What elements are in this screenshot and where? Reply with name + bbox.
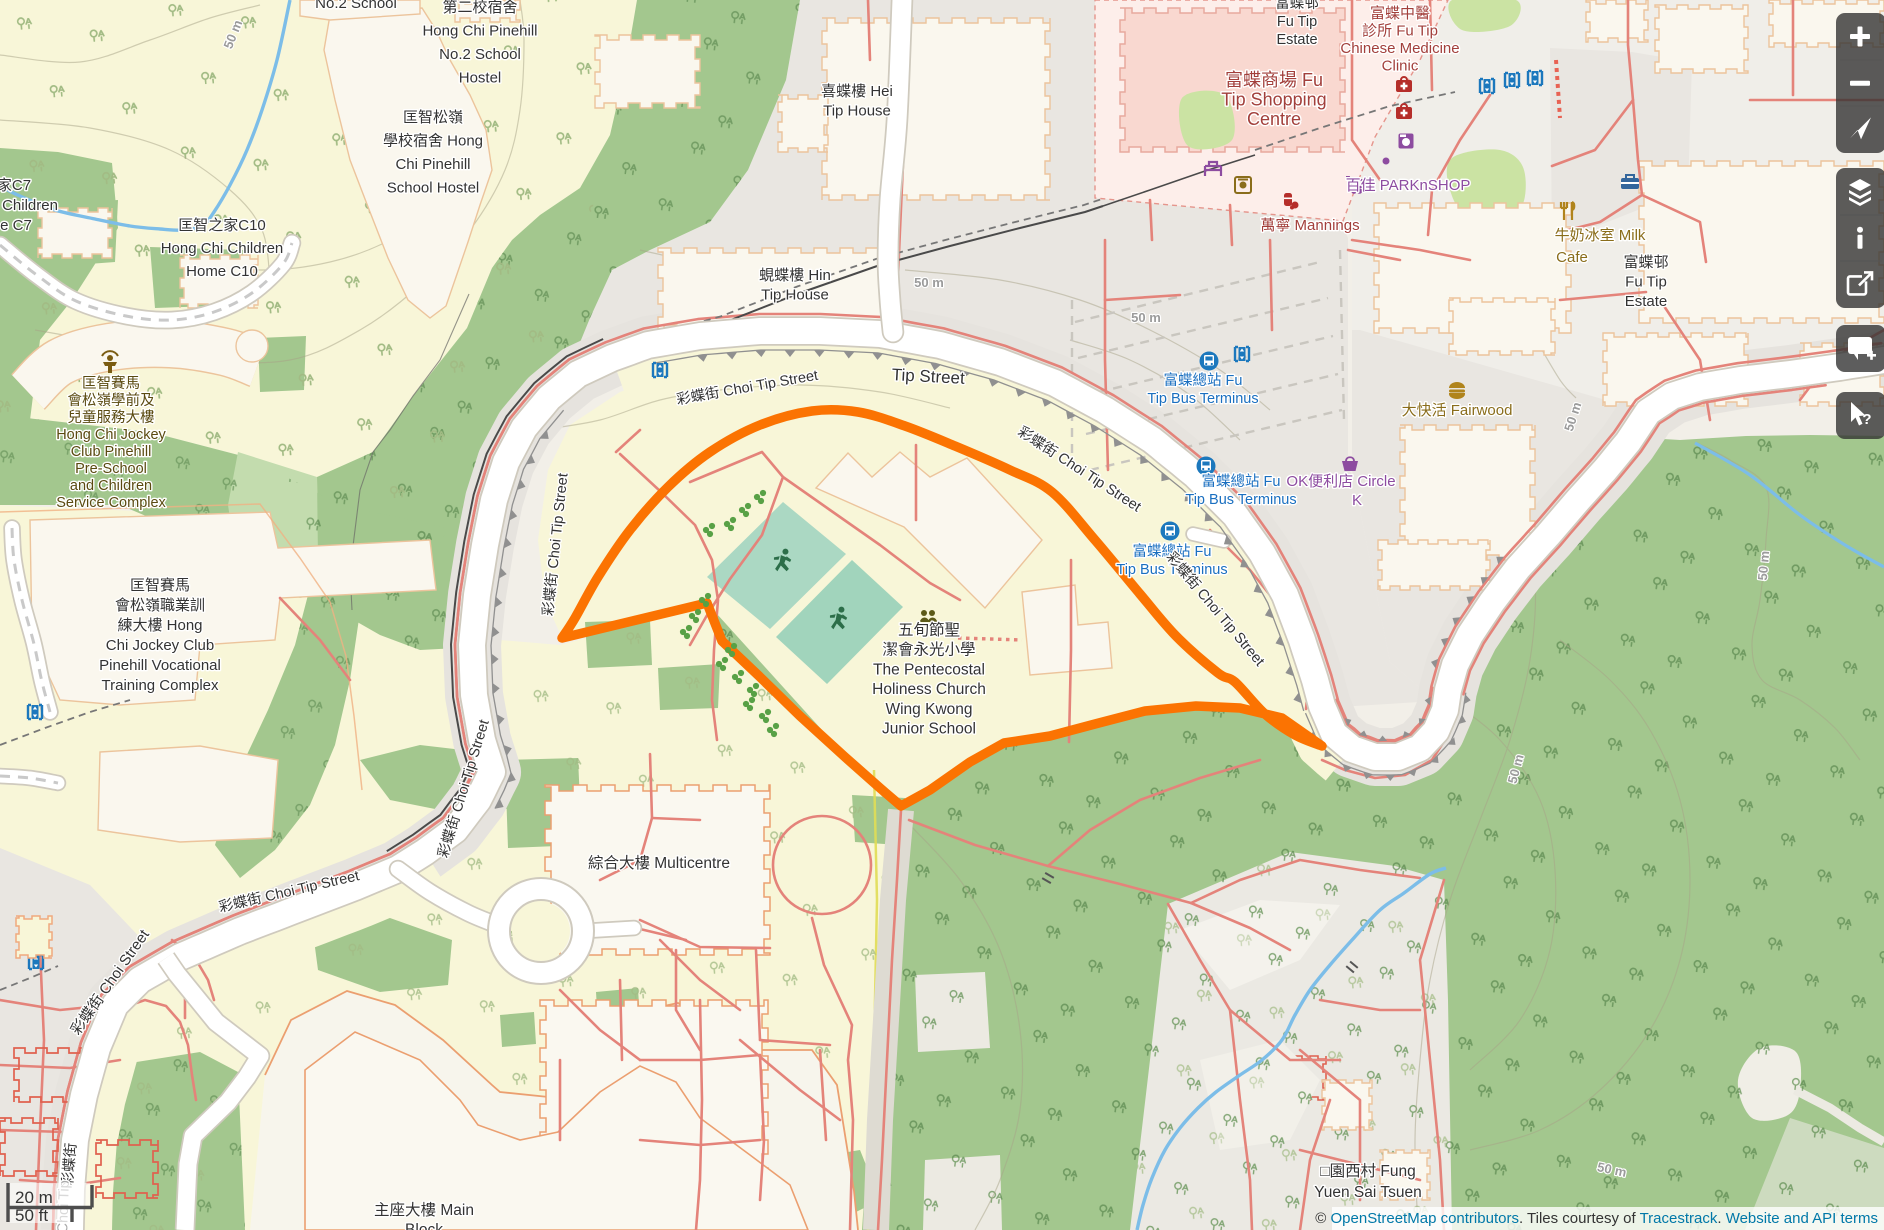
svg-text:富蝶邨: 富蝶邨 <box>1275 0 1319 12</box>
svg-text:Tip Street: Tip Street <box>891 365 965 388</box>
svg-text:學校宿舍 Hong: 學校宿舍 Hong <box>383 132 483 150</box>
svg-text:50 ft: 50 ft <box>15 1206 48 1225</box>
svg-text:Clinic: Clinic <box>1382 58 1419 75</box>
svg-text:Service Complex: Service Complex <box>56 495 166 511</box>
svg-text:Estate: Estate <box>1625 293 1668 310</box>
svg-text:綜合大樓 Multicentre: 綜合大樓 Multicentre <box>588 854 730 872</box>
svg-text:No.2 School: No.2 School <box>439 46 521 63</box>
svg-text:Junior School: Junior School <box>882 721 976 738</box>
svg-text:The Pentecostal: The Pentecostal <box>873 661 985 678</box>
svg-text:Fu Tip: Fu Tip <box>1625 274 1667 291</box>
svg-text:Home C10: Home C10 <box>186 263 258 280</box>
svg-text:主座大樓 Main: 主座大樓 Main <box>374 1201 474 1219</box>
svg-text:Tip Bus Terminus: Tip Bus Terminus <box>1185 492 1296 508</box>
svg-text:匡智賽馬: 匡智賽馬 <box>82 375 140 392</box>
svg-text:Tip Bus Terminus: Tip Bus Terminus <box>1147 391 1258 407</box>
svg-text:and Children: and Children <box>70 478 152 494</box>
svg-text:蜆蝶樓 Hin: 蜆蝶樓 Hin <box>759 267 831 284</box>
svg-text:家C7: 家C7 <box>0 177 31 194</box>
svg-text:練大樓 Hong: 練大樓 Hong <box>117 617 202 634</box>
svg-text:Children: Children <box>2 197 58 214</box>
svg-text:20 m: 20 m <box>15 1188 53 1207</box>
svg-text:Estate: Estate <box>1276 32 1317 48</box>
svg-text:No.2 School: No.2 School <box>315 0 397 12</box>
svg-text:牛奶冰室 Milk: 牛奶冰室 Milk <box>1555 227 1646 244</box>
svg-text:Hong Chi Jockey: Hong Chi Jockey <box>56 427 166 443</box>
svg-text:Tip House: Tip House <box>823 103 891 120</box>
svg-text:Tip Shopping: Tip Shopping <box>1221 90 1326 110</box>
svg-text:Chinese Medicine: Chinese Medicine <box>1340 40 1459 57</box>
svg-text:Hostel: Hostel <box>459 70 502 87</box>
svg-text:50 m: 50 m <box>1131 310 1161 325</box>
svg-text:Hong Chi Pinehill: Hong Chi Pinehill <box>422 23 537 40</box>
svg-text:富蝶總站 Fu: 富蝶總站 Fu <box>1202 472 1281 490</box>
svg-text:K: K <box>1352 492 1362 509</box>
svg-text:潔會永光小學: 潔會永光小學 <box>882 640 975 659</box>
svg-text:Tip House: Tip House <box>761 287 829 304</box>
svg-text:Chi Pinehill: Chi Pinehill <box>395 156 470 173</box>
svg-text:Yuen Sai Tsuen: Yuen Sai Tsuen <box>1314 1184 1421 1201</box>
svg-text:兒童服務大樓: 兒童服務大樓 <box>68 408 155 426</box>
svg-text:Training Complex: Training Complex <box>102 677 219 694</box>
svg-text:Wing Kwong: Wing Kwong <box>885 701 972 718</box>
svg-text:富蝶商場 Fu: 富蝶商場 Fu <box>1225 70 1323 90</box>
svg-text:喜蝶樓 Hei: 喜蝶樓 Hei <box>821 83 893 100</box>
svg-text:Club Pinehill: Club Pinehill <box>71 444 152 460</box>
svg-text:百佳 PARKnSHOP: 百佳 PARKnSHOP <box>1346 177 1471 194</box>
svg-text:會松嶺學前及: 會松嶺學前及 <box>68 391 155 409</box>
svg-text:Fu Tip: Fu Tip <box>1277 14 1317 30</box>
svg-text:Block: Block <box>405 1222 443 1230</box>
svg-text:匡智松嶺: 匡智松嶺 <box>403 108 463 126</box>
svg-text:大快活 Fairwood: 大快活 Fairwood <box>1402 402 1513 419</box>
svg-text:富蝶中醫: 富蝶中醫 <box>1370 4 1430 22</box>
svg-text:50 m: 50 m <box>1755 550 1773 581</box>
svg-text:富蝶總站 Fu: 富蝶總站 Fu <box>1164 371 1243 389</box>
svg-text:Pinehill Vocational: Pinehill Vocational <box>99 657 221 674</box>
svg-text:50 m: 50 m <box>914 275 944 290</box>
svg-text:Pre-School: Pre-School <box>75 461 147 477</box>
svg-text:會松嶺職業訓: 會松嶺職業訓 <box>115 597 205 614</box>
svg-text:OK便利店 Circle: OK便利店 Circle <box>1286 473 1395 490</box>
svg-text:?: ? <box>1862 411 1871 428</box>
svg-text:匡智之家C10: 匡智之家C10 <box>178 216 266 234</box>
svg-text:第二校宿舍: 第二校宿舍 <box>442 0 517 16</box>
svg-text:五旬節聖: 五旬節聖 <box>898 621 960 639</box>
svg-text:Cafe: Cafe <box>1556 249 1588 266</box>
svg-text:Chi Jockey Club: Chi Jockey Club <box>106 637 214 654</box>
svg-text:© OpenStreetMap contributors.: © OpenStreetMap contributors. Tiles cour… <box>1315 1210 1878 1227</box>
svg-text:Holiness Church: Holiness Church <box>872 681 986 698</box>
svg-text:School Hostel: School Hostel <box>387 180 480 197</box>
svg-text:診所 Fu Tip: 診所 Fu Tip <box>1362 23 1438 40</box>
svg-text:e C7: e C7 <box>0 217 32 234</box>
svg-text:匡智賽馬: 匡智賽馬 <box>130 576 190 594</box>
svg-text:□園西村 Fung: □園西村 Fung <box>1320 1162 1416 1180</box>
svg-text:Hong Chi Children: Hong Chi Children <box>161 240 284 257</box>
svg-text:Centre: Centre <box>1247 109 1301 129</box>
svg-text:萬寧 Mannings: 萬寧 Mannings <box>1260 217 1359 234</box>
svg-text:富蝶邨: 富蝶邨 <box>1623 253 1668 271</box>
